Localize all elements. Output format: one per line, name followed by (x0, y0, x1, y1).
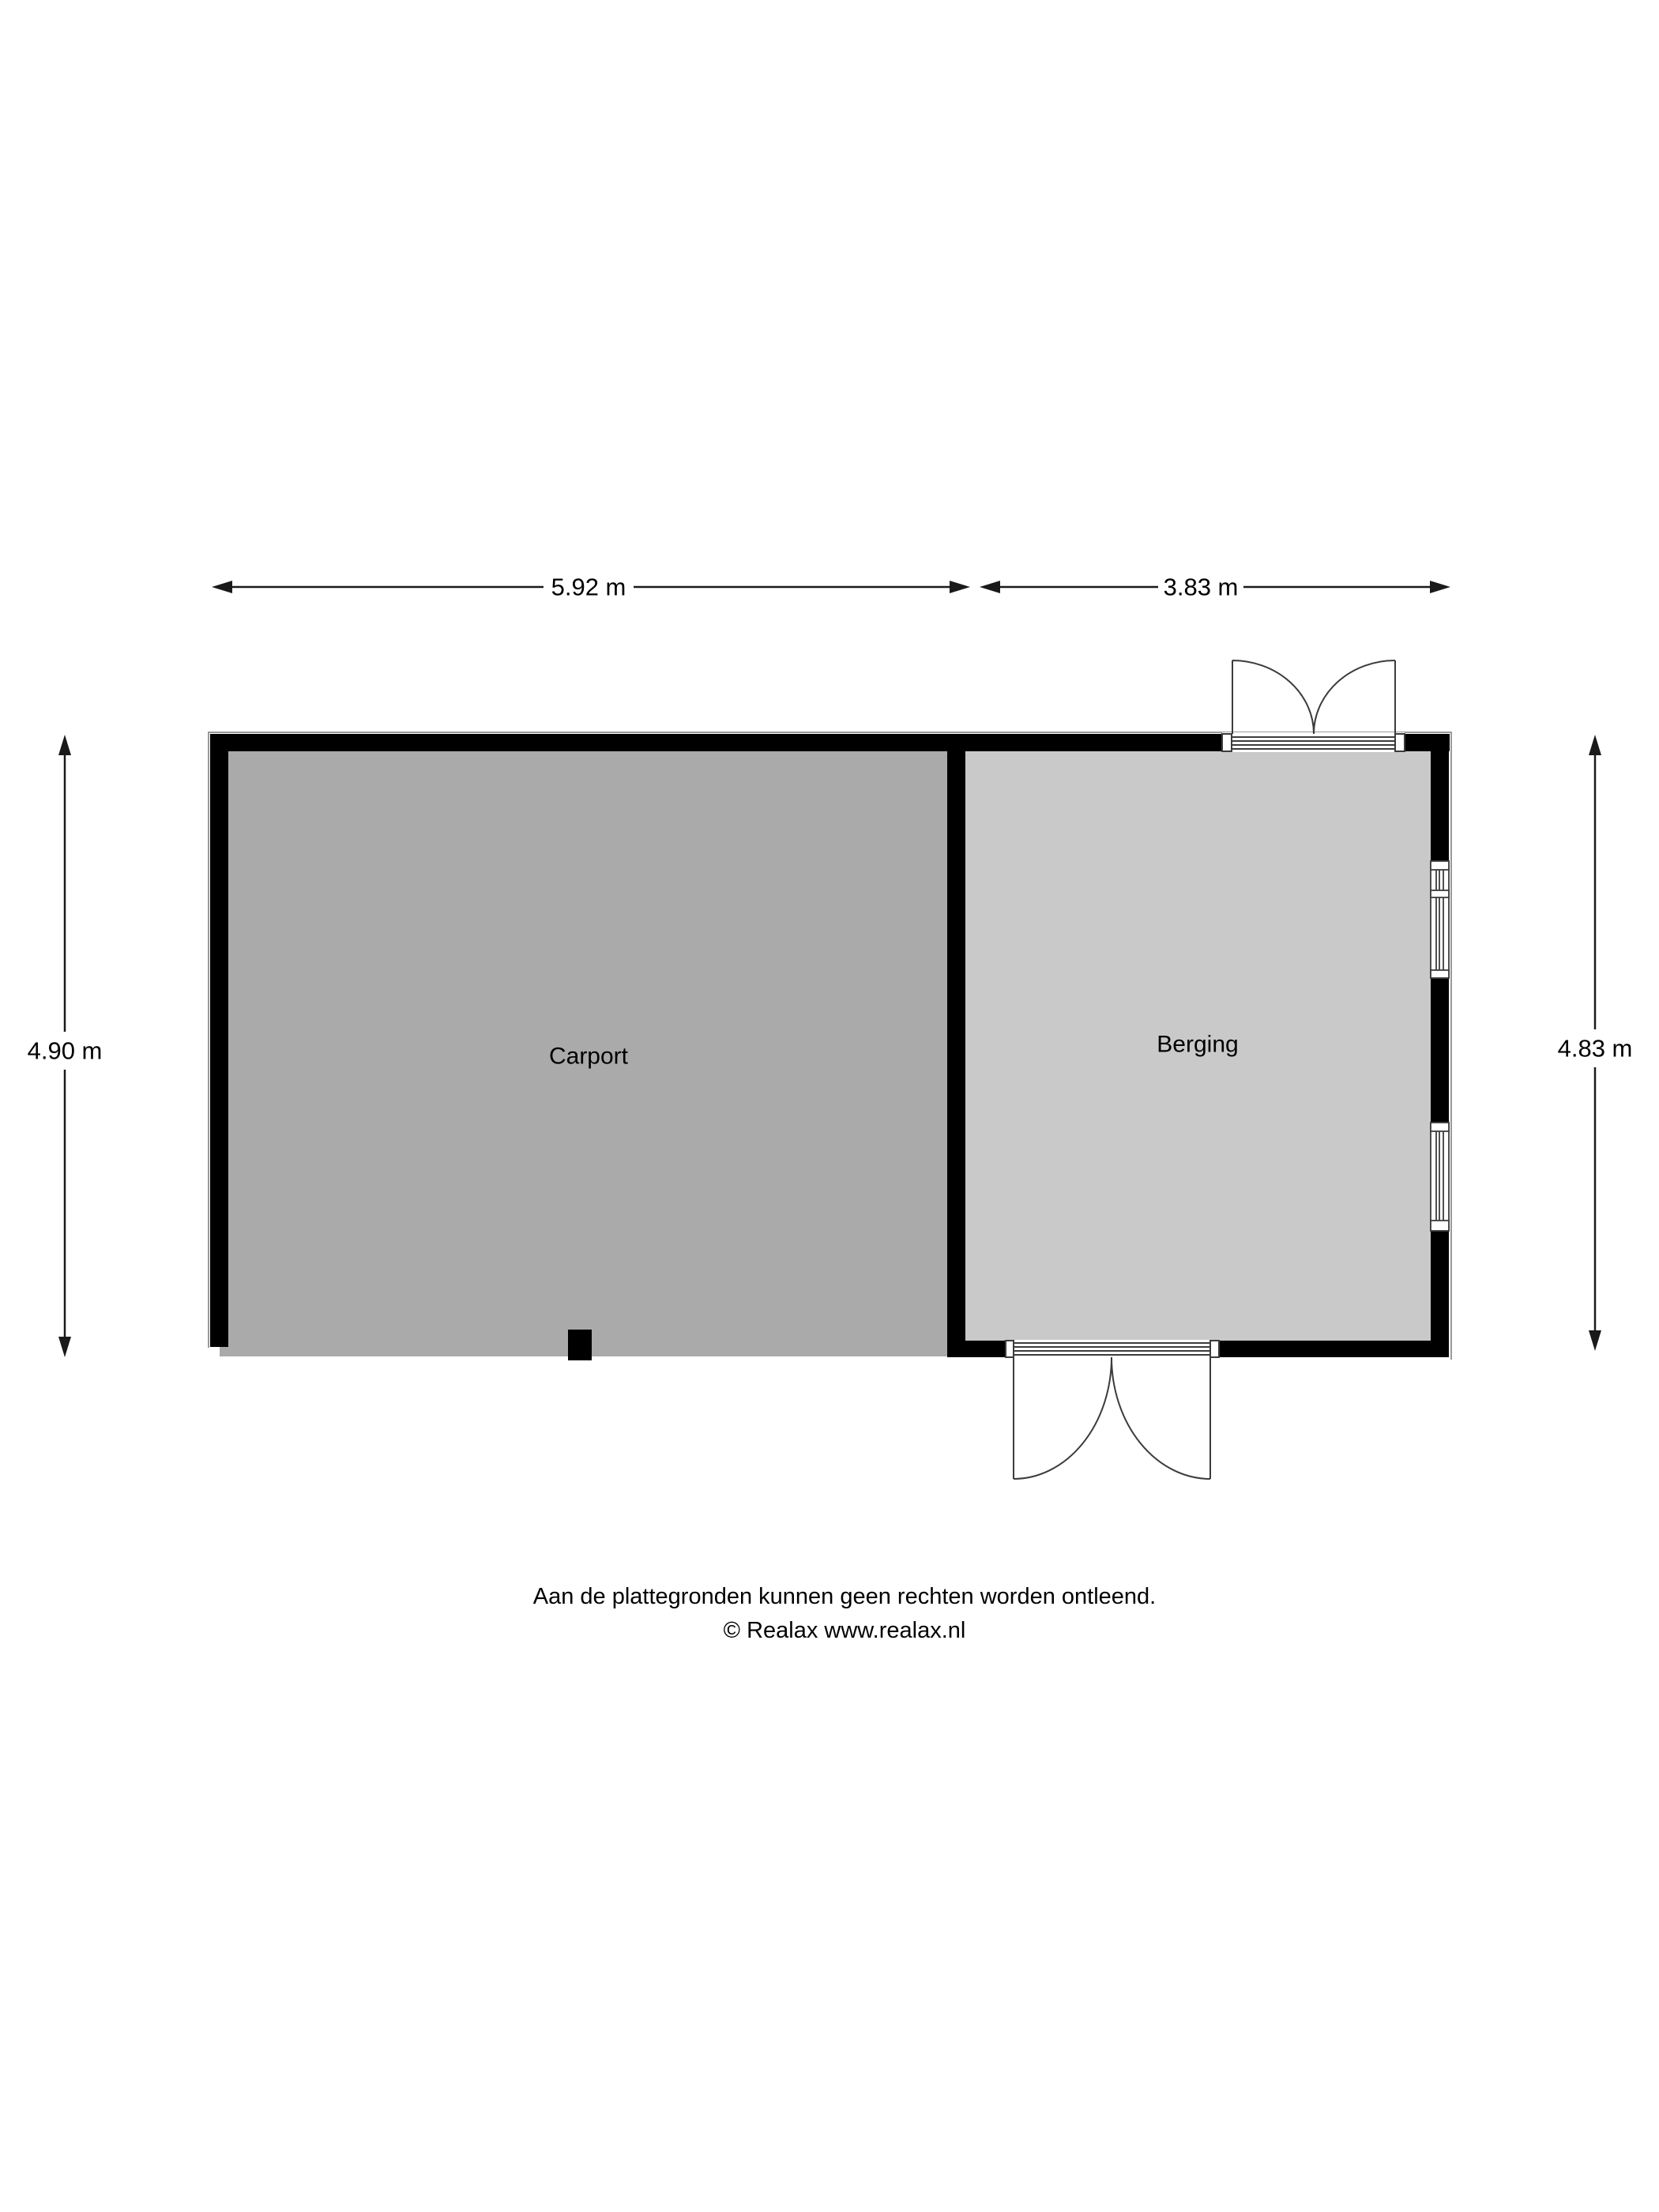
wall-right-lower (1431, 1231, 1449, 1357)
window-upper-sill-top (1431, 861, 1449, 870)
door-top-frame-left (1222, 734, 1232, 751)
window-lower (1431, 1123, 1449, 1231)
room-label-carport: Carport (549, 1044, 629, 1070)
window-upper-mullion (1431, 890, 1449, 897)
window-upper-sill-bottom (1431, 970, 1449, 978)
wall-divider (947, 734, 965, 1357)
door-bottom-frame-left (1006, 1341, 1014, 1357)
door-top-frame-right (1395, 734, 1405, 751)
wall-top-right-corner (1405, 734, 1450, 751)
dimension-label-carport-width: 5.92 m (551, 574, 626, 601)
window-upper (1431, 861, 1449, 978)
dimension-label-carport-depth: 4.90 m (28, 1037, 103, 1065)
wall-bottom-right-of-door (1219, 1341, 1449, 1357)
window-lower-sill-top (1431, 1123, 1449, 1131)
dimension-label-berging-width: 3.83 m (1164, 574, 1239, 601)
wall-top (210, 734, 1222, 751)
door-bottom-frame-right (1210, 1341, 1219, 1357)
footer-copyright: © Realax www.realax.nl (724, 1618, 966, 1643)
floors (220, 743, 1431, 1356)
wall-right-middle (1431, 978, 1449, 1123)
window-lower-sill-bottom (1431, 1221, 1449, 1231)
floorplan-canvas: 5.92 m 3.83 m 4.90 m 4.83 m Carport Berg… (0, 0, 1659, 2212)
dimension-label-berging-depth: 4.83 m (1558, 1035, 1633, 1063)
wall-left (210, 734, 228, 1347)
wall-bottom-left-of-door (947, 1341, 1006, 1357)
footer-disclaimer: Aan de plattegronden kunnen geen rechten… (533, 1584, 1156, 1609)
carport-post (568, 1330, 592, 1360)
room-label-berging: Berging (1157, 1032, 1238, 1058)
wall-right-upper (1431, 751, 1449, 861)
